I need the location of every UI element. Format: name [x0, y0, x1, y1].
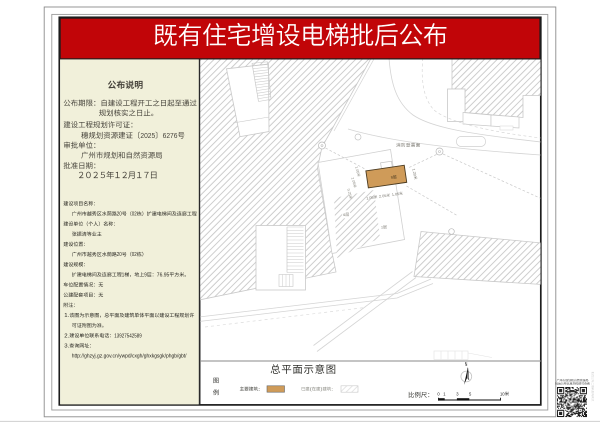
svg-text:76.95: 76.95: [157, 272, 170, 278]
svg-text:0: 0: [437, 391, 440, 396]
svg-text:http://ghzyj.gz.gov.cn/ywpd/cx: http://ghzyj.gz.gov.cn/ywpd/cxgh/ghxkgsg…: [72, 354, 187, 360]
svg-text:1: 1: [443, 391, 446, 396]
svg-text:2025: 2025: [140, 131, 155, 140]
svg-text:5: 5: [469, 391, 472, 396]
svg-text:20: 20: [117, 211, 122, 217]
svg-text:13927542589: 13927542589: [114, 333, 142, 339]
svg-text:3.: 3.: [64, 343, 69, 349]
svg-text:02: 02: [132, 252, 137, 258]
svg-text::: :: [331, 386, 333, 391]
svg-text:1: 1: [122, 272, 125, 278]
svg-text::: :: [258, 386, 260, 391]
svg-text:N: N: [465, 362, 468, 368]
svg-text:02: 02: [132, 211, 137, 217]
svg-text:1.: 1.: [64, 313, 69, 319]
svg-text:10: 10: [500, 391, 505, 396]
svg-text:3: 3: [456, 391, 459, 396]
svg-text:6276: 6276: [163, 131, 178, 140]
svg-text:20: 20: [117, 252, 122, 258]
svg-text:2.: 2.: [64, 333, 69, 339]
svg-text:9: 9: [144, 272, 147, 278]
